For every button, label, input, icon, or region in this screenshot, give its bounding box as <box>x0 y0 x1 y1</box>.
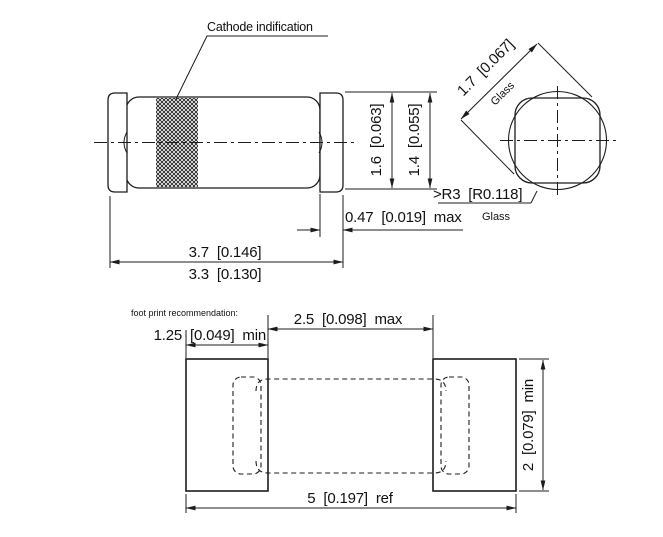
left-pad-outline <box>186 359 268 491</box>
dim-pad-gap: 2.5 [0.098] max <box>294 311 403 328</box>
dim-pad-height: 2 [0.079] min <box>520 379 537 471</box>
cathode-label: Cathode indification <box>207 20 313 34</box>
side-view: Cathode indification 1.6 [0.063] 1.4 [0.… <box>94 20 463 283</box>
dim-glass-length: 3.3 [0.130] <box>189 266 262 283</box>
body-dashed-bottom <box>256 461 446 473</box>
corner-material-label: Glass <box>482 211 511 223</box>
footprint-title: foot print recommendation: <box>131 308 238 318</box>
corner-radius-leader <box>531 191 537 203</box>
body-dashed-top <box>256 379 446 391</box>
diagonal-material-label: Glass <box>489 79 518 108</box>
dim-overall-length: 3.7 [0.146] <box>189 244 262 261</box>
dim-pad-width: 1.25 [0.049] min <box>154 327 266 344</box>
end-view: 1.7 [0.067] Glass >R3 [R0.118] Glass <box>433 36 616 223</box>
dim-cap-diameter: 1.6 [0.063] <box>368 104 385 177</box>
technical-drawing-page: Cathode indification 1.6 [0.063] 1.4 [0.… <box>0 0 663 537</box>
dim-glass-diameter: 1.4 [0.055] <box>406 104 423 177</box>
right-pad-outline <box>433 359 516 491</box>
footprint-view: foot print recommendation: 1.25 [0.049] … <box>131 308 549 513</box>
cathode-leader-line <box>176 36 328 99</box>
dim-overall-fp: 5 [0.197] ref <box>307 490 393 507</box>
ext-line-diagonal-upper <box>538 43 592 97</box>
corner-radius-label: >R3 [R0.118] <box>433 186 522 203</box>
melf-diode-drawing: Cathode indification 1.6 [0.063] 1.4 [0.… <box>0 0 663 537</box>
ext-line-diagonal-lower <box>461 120 514 174</box>
dim-cap-length: 0.47 [0.019] max <box>345 209 462 226</box>
